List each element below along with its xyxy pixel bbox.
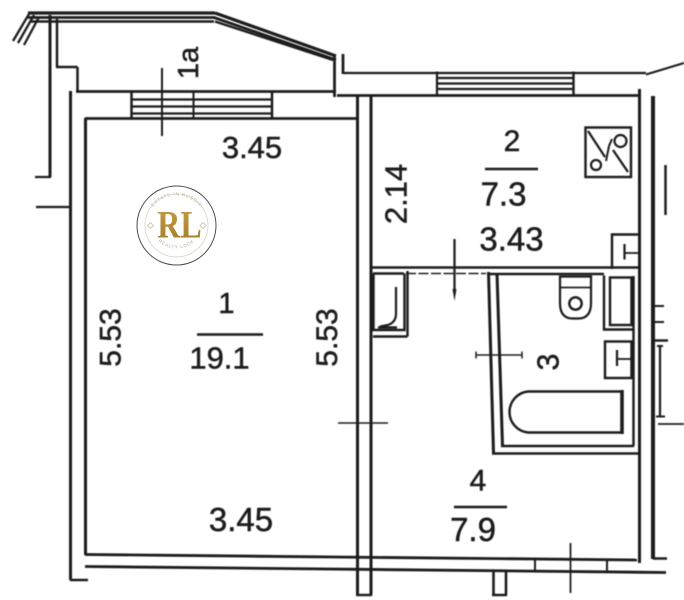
svg-text:5.53: 5.53 (311, 308, 344, 366)
svg-text:7.9: 7.9 (450, 511, 496, 548)
svg-text:1: 1 (218, 288, 234, 320)
svg-text:3.45: 3.45 (222, 130, 282, 165)
svg-text:3.45: 3.45 (209, 501, 273, 538)
svg-text:4: 4 (470, 465, 487, 498)
svg-text:5.53: 5.53 (95, 308, 128, 366)
svg-text:2: 2 (504, 125, 521, 158)
svg-text:2.14: 2.14 (379, 164, 414, 224)
svg-text:7.3: 7.3 (481, 176, 527, 213)
svg-text:3.43: 3.43 (479, 221, 543, 258)
svg-text:1а: 1а (173, 46, 205, 79)
svg-text:3: 3 (532, 354, 566, 371)
svg-text:19.1: 19.1 (189, 341, 249, 376)
svg-text:RL: RL (157, 203, 201, 247)
